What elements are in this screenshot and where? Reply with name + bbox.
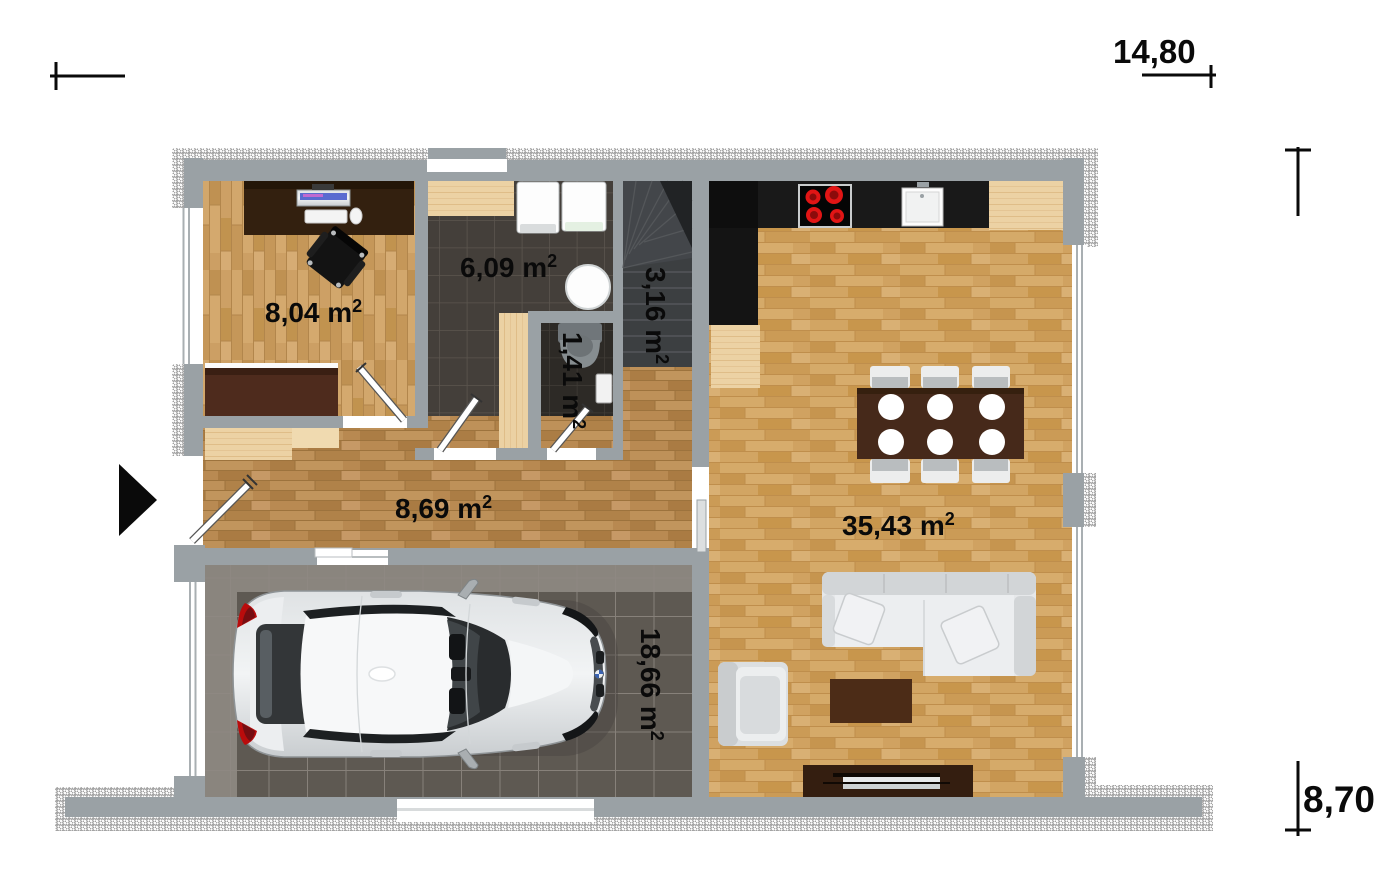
svg-text:8,04 m2: 8,04 m2 — [265, 296, 362, 328]
svg-text:35,43 m2: 35,43 m2 — [842, 509, 955, 541]
svg-text:14,80: 14,80 — [1113, 33, 1196, 70]
svg-text:1,41 m2: 1,41 m2 — [557, 332, 589, 429]
svg-text:8,69 m2: 8,69 m2 — [395, 492, 492, 524]
svg-text:8,70: 8,70 — [1303, 779, 1375, 820]
svg-text:3,16 m2: 3,16 m2 — [640, 267, 672, 364]
svg-text:18,66 m2: 18,66 m2 — [635, 628, 667, 741]
svg-text:6,09 m2: 6,09 m2 — [460, 251, 557, 283]
